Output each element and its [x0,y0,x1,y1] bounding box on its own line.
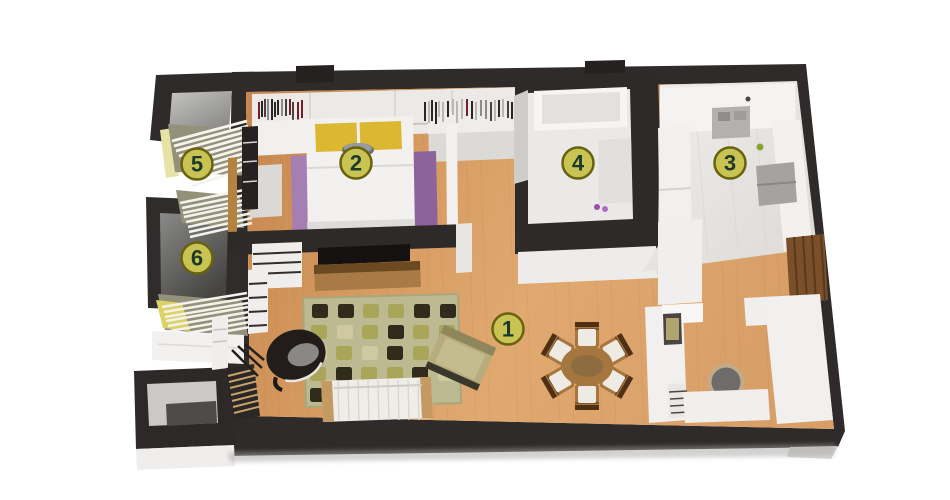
svg-text:3: 3 [724,151,736,176]
svg-text:1: 1 [502,317,514,342]
svg-text:5: 5 [191,152,203,177]
svg-text:6: 6 [191,246,203,271]
svg-text:2: 2 [350,151,362,176]
svg-text:4: 4 [572,151,585,176]
